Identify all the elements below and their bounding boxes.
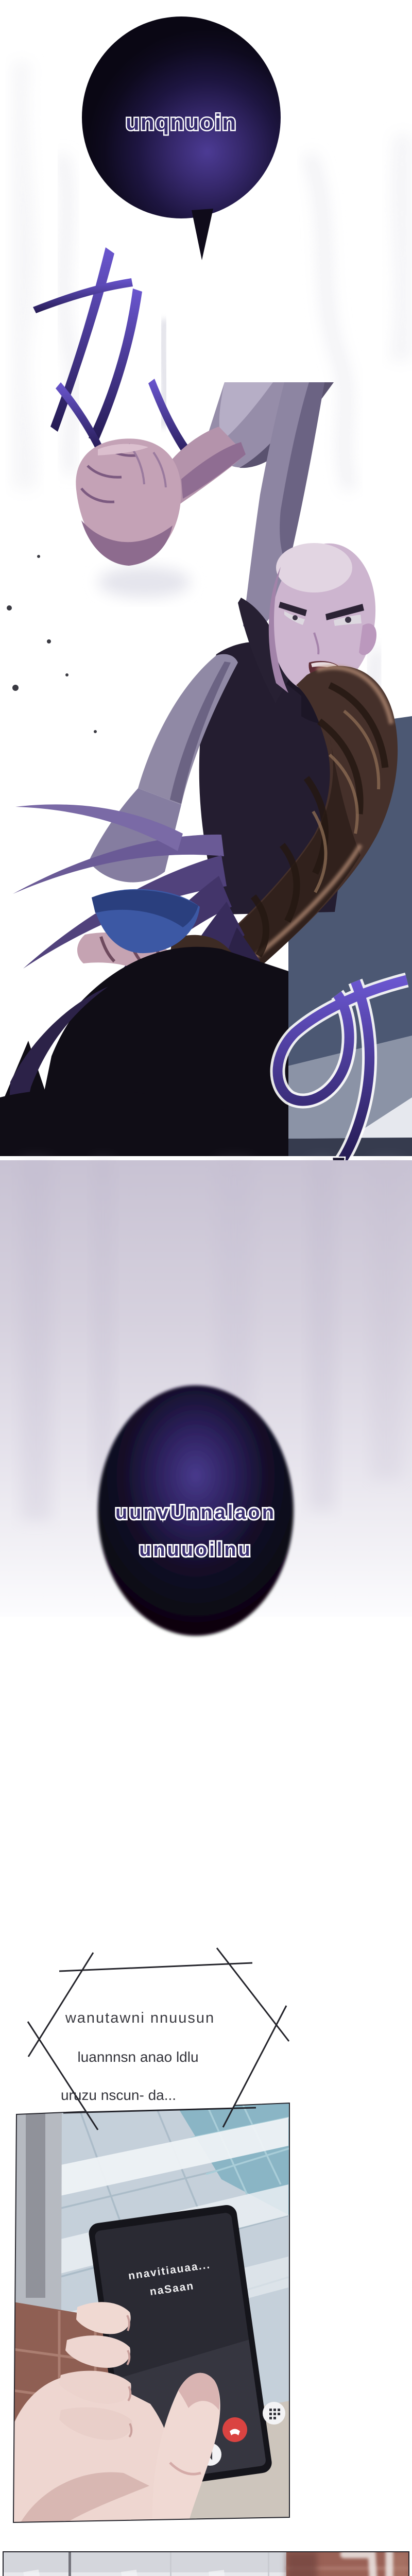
- svg-text:unqnuoin: unqnuoin: [126, 110, 237, 135]
- svg-text:luannnsn anao ldlu: luannnsn anao ldlu: [77, 2049, 198, 2065]
- svg-text:uruzu nscun- da...: uruzu nscun- da...: [61, 2087, 176, 2103]
- svg-text:unuuoilnu: unuuoilnu: [139, 1539, 252, 1561]
- svg-text:uunvUnnalaon: uunvUnnalaon: [115, 1502, 276, 1523]
- svg-text:wanutawni nnuusun: wanutawni nnuusun: [65, 2010, 215, 2026]
